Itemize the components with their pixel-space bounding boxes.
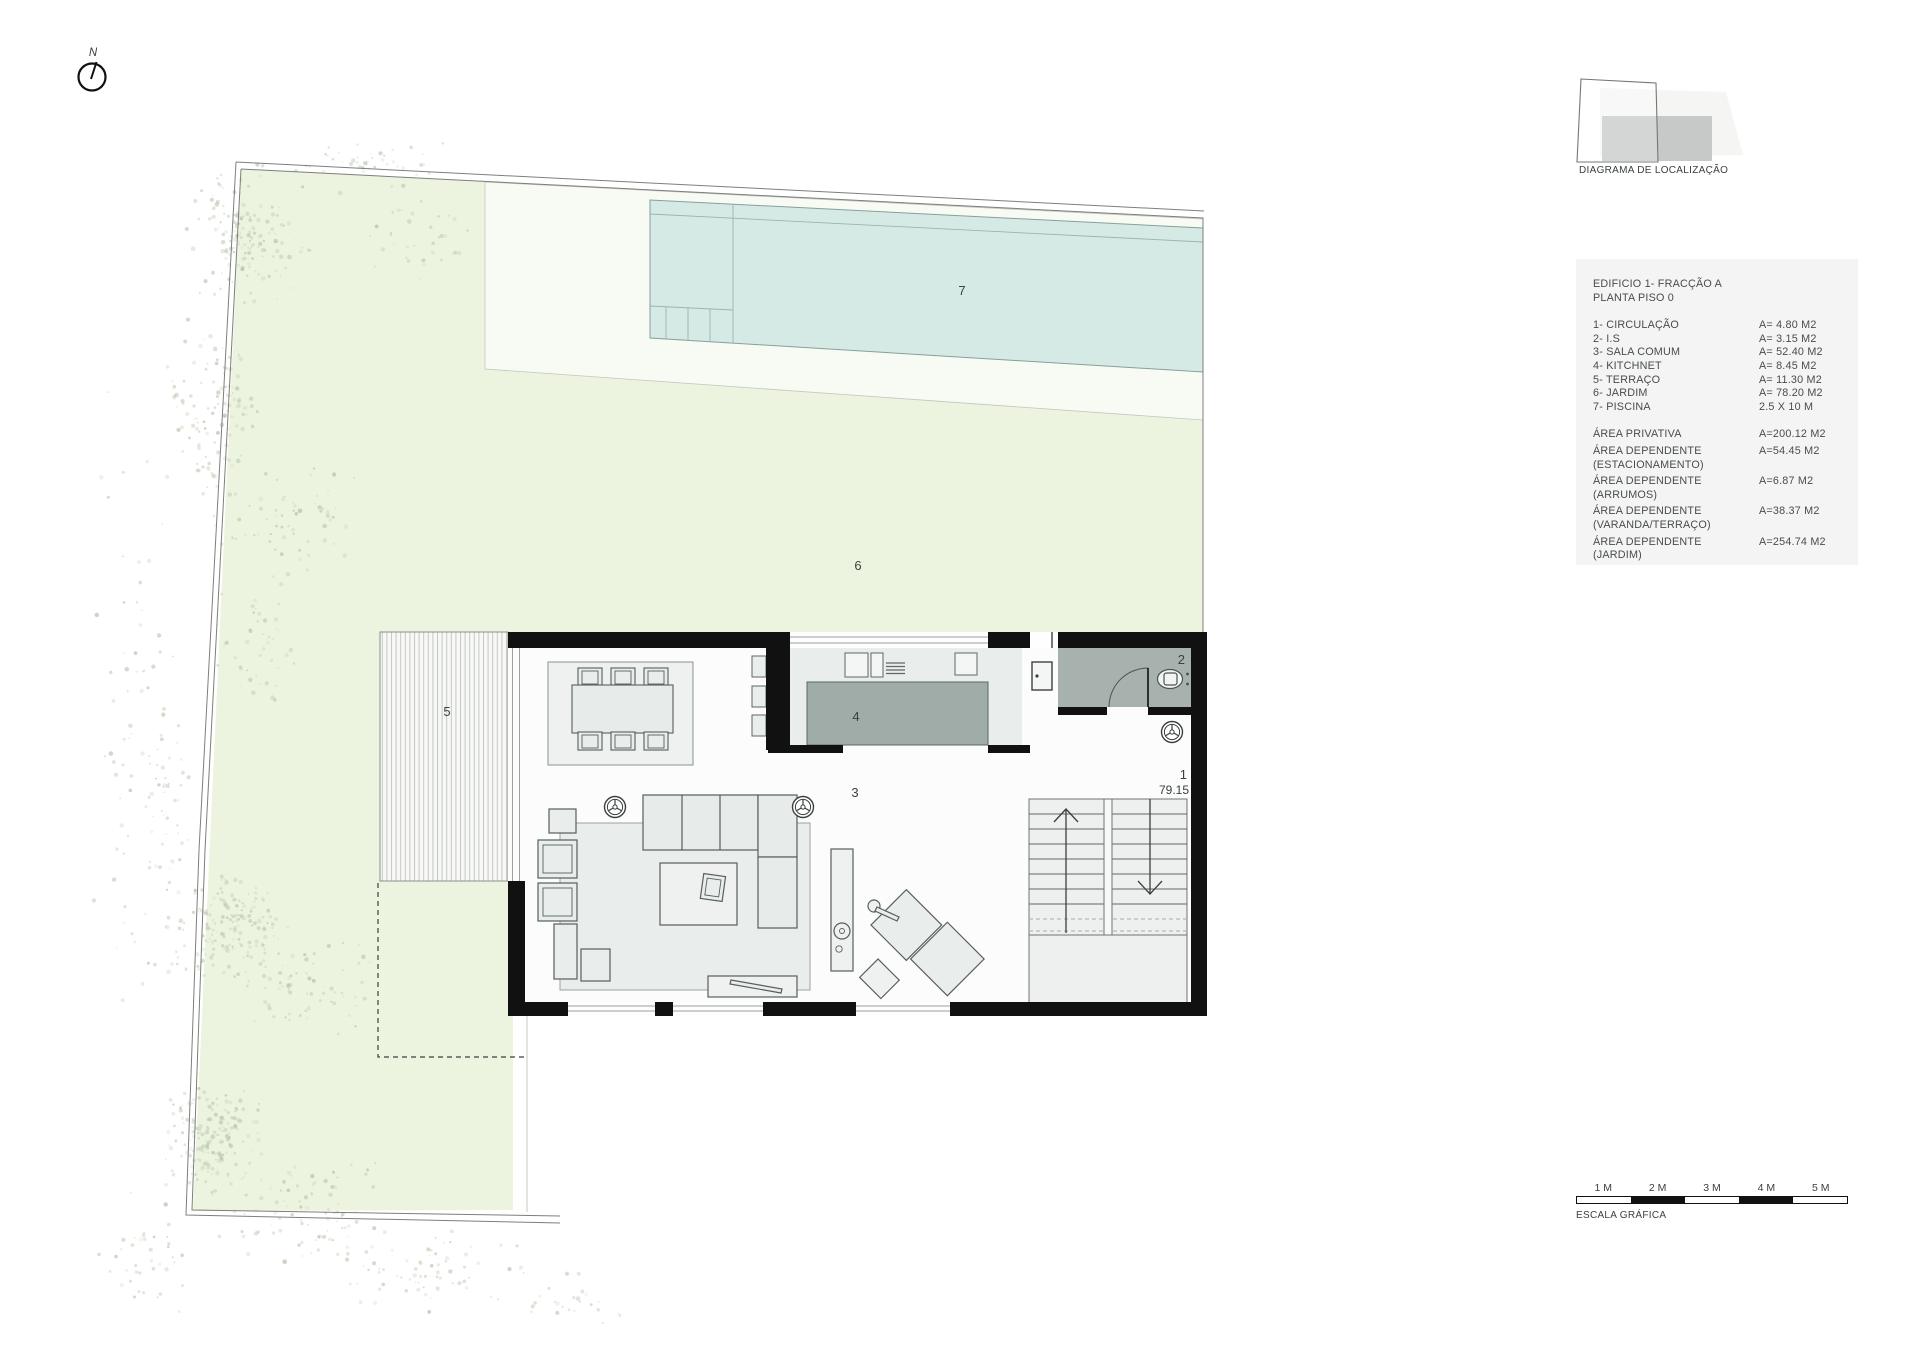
ceiling-fan-icon: [605, 797, 626, 818]
kitchen-island: [807, 682, 988, 745]
ceiling-fan-icon: [793, 797, 814, 818]
legend-room-row: 7- PISCINA2.5 X 10 M: [1593, 401, 1858, 415]
legend-room-row: 1- CIRCULAÇÃOA= 4.80 M2: [1593, 319, 1858, 333]
legend-area-row: ÁREA PRIVATIVAA=200.12 M2: [1593, 428, 1858, 442]
north-label: N: [89, 47, 98, 59]
side-table: [549, 809, 576, 833]
kitchen: [752, 648, 1022, 745]
legend-area-row: ÁREA DEPENDENTEA=54.45 M2: [1593, 445, 1858, 459]
tv-console: [708, 976, 797, 997]
media-cabinet: [831, 849, 853, 971]
legend-room-row: 5- TERRAÇOA= 11.30 M2: [1593, 374, 1858, 388]
legend-area-row: ÁREA DEPENDENTEA=38.37 M2: [1593, 505, 1858, 519]
pouf: [581, 949, 610, 981]
legend-area-row: ÁREA DEPENDENTEA=6.87 M2: [1593, 475, 1858, 489]
label-circulation: 1: [1180, 767, 1187, 782]
legend-area-row: ÁREA DEPENDENTEA=254.74 M2: [1593, 536, 1858, 550]
label-kitchen: 4: [852, 709, 859, 724]
legend-subtitle: PLANTA PISO 0: [1593, 292, 1858, 306]
north-arrow-icon: N: [79, 47, 106, 91]
dining-chairs-top: [578, 668, 668, 686]
label-garden: 6: [854, 558, 861, 573]
ceiling-fan-icon: [1162, 722, 1183, 743]
location-lot-outline: [1577, 79, 1658, 162]
site-plan-drawing: 5 6 7 4 3 2 1 79.15 N: [0, 0, 1920, 1357]
stair-divider: [1104, 799, 1112, 935]
armchair: [538, 883, 577, 921]
scale-bar: 1 M 2 M 3 M 4 M 5 M ESCALA GRÁFICA: [1576, 1182, 1848, 1221]
label-terrace: 5: [443, 704, 450, 719]
label-floor-level: 79.15: [1159, 783, 1189, 797]
stair-landing: [1029, 935, 1187, 1003]
legend-title: EDIFICIO 1- FRACÇÃO A: [1593, 278, 1858, 292]
legend-room-row: 4- KITCHNETA= 8.45 M2: [1593, 360, 1858, 374]
legend-room-row: 3- SALA COMUMA= 52.40 M2: [1593, 346, 1858, 360]
scale-tick-labels: 1 M 2 M 3 M 4 M 5 M: [1576, 1182, 1848, 1194]
armchair: [538, 840, 577, 878]
entry-fixture: [1032, 662, 1052, 690]
scale-bar-title: ESCALA GRÁFICA: [1576, 1210, 1848, 1221]
kitchen-appliances: [752, 656, 766, 736]
floor-plan-sheet: 5 6 7 4 3 2 1 79.15 N DIAGRAMA DE LOCALI…: [0, 0, 1920, 1357]
dining-chairs-bottom: [578, 732, 668, 750]
label-bathroom: 2: [1178, 652, 1185, 667]
building: [508, 632, 1207, 1030]
staircase: [1029, 799, 1187, 1003]
bathroom: [1058, 648, 1191, 715]
coffee-table: [660, 863, 737, 925]
location-diagram: [1577, 79, 1743, 162]
legend-panel: EDIFICIO 1- FRACÇÃO A PLANTA PISO 0 1- C…: [1576, 259, 1858, 565]
legend-room-row: 2- I.SA= 3.15 M2: [1593, 333, 1858, 347]
dining-table: [572, 685, 673, 733]
kitchen-sink: [845, 653, 868, 677]
sideboard: [554, 924, 577, 979]
location-diagram-title: DIAGRAMA DE LOCALIZAÇÃO: [1579, 165, 1728, 176]
kitchen-cooktop: [955, 653, 977, 675]
legend-room-row: 6- JARDIMA= 78.20 M2: [1593, 387, 1858, 401]
label-pool: 7: [958, 283, 965, 298]
entry-door: [1030, 632, 1058, 648]
label-living: 3: [851, 785, 858, 800]
scale-bar-segments: [1576, 1196, 1848, 1204]
dining-area: [548, 662, 693, 765]
